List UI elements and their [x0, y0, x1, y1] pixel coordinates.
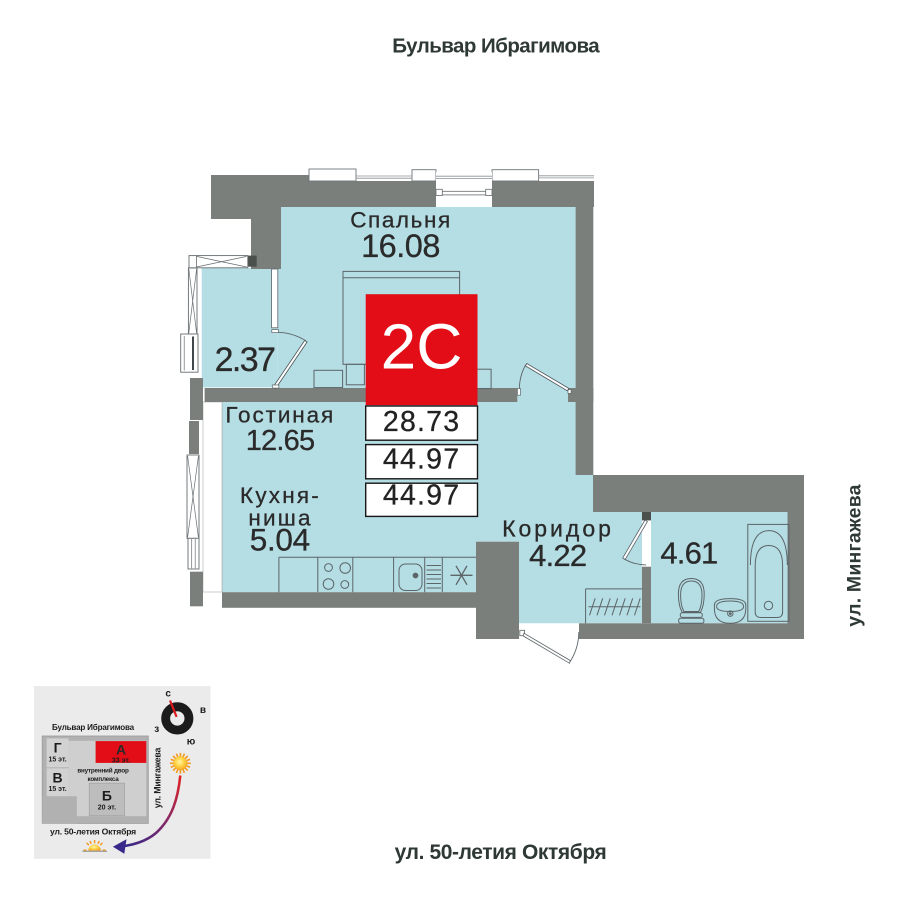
svg-text:33 эт.: 33 эт. — [112, 757, 130, 764]
svg-text:Бульвар Ибрагимова: Бульвар Ибрагимова — [52, 723, 135, 732]
svg-text:А: А — [116, 742, 126, 758]
svg-text:в: в — [200, 705, 206, 716]
svg-text:ул. 50-летия Октября: ул. 50-летия Октября — [50, 826, 136, 836]
svg-text:16.08: 16.08 — [361, 228, 440, 264]
svg-text:44.97: 44.97 — [383, 444, 460, 476]
svg-text:ул. Мингажева: ул. Мингажева — [843, 484, 865, 626]
svg-text:Б: Б — [102, 787, 112, 803]
svg-text:з: з — [154, 724, 159, 735]
svg-text:Гостиная: Гостиная — [225, 402, 335, 427]
svg-text:20 эт.: 20 эт. — [98, 805, 116, 812]
svg-text:15 эт.: 15 эт. — [48, 786, 66, 793]
svg-text:2.37: 2.37 — [215, 341, 275, 379]
svg-text:ул. Мингажева: ул. Мингажева — [152, 747, 162, 808]
svg-text:с: с — [165, 688, 171, 699]
svg-text:Кухня-: Кухня- — [240, 483, 321, 508]
svg-text:2С: 2С — [381, 311, 463, 383]
svg-text:Г: Г — [54, 740, 62, 756]
svg-text:комплекса: комплекса — [87, 776, 119, 783]
svg-text:ул. 50-летия Октября: ул. 50-летия Октября — [395, 841, 607, 864]
svg-text:28.73: 28.73 — [383, 406, 460, 438]
svg-text:12.65: 12.65 — [246, 425, 315, 457]
svg-text:В: В — [53, 770, 63, 786]
svg-text:4.22: 4.22 — [529, 538, 586, 573]
svg-text:4.61: 4.61 — [660, 536, 717, 571]
svg-text:Бульвар Ибрагимова: Бульвар Ибрагимова — [392, 35, 600, 58]
svg-text:ю: ю — [187, 737, 196, 748]
svg-text:внутренний двор: внутренний двор — [77, 766, 129, 774]
svg-text:15 эт.: 15 эт. — [48, 757, 66, 764]
svg-text:5.04: 5.04 — [250, 522, 310, 558]
svg-text:44.97: 44.97 — [383, 480, 460, 512]
